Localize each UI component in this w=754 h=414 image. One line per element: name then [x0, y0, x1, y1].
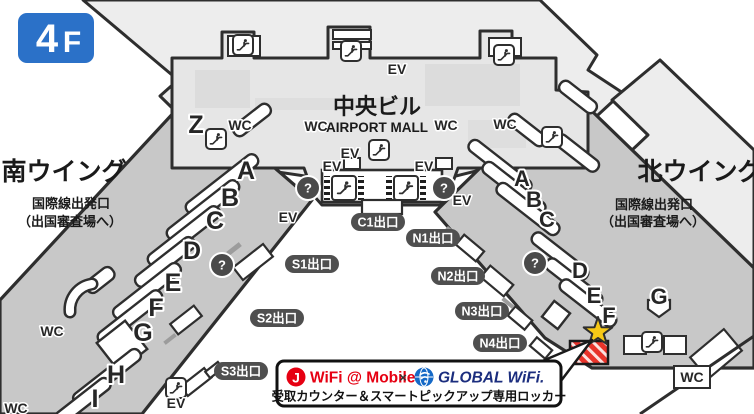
- svg-text:?: ?: [218, 258, 226, 273]
- wc-label: WC: [493, 116, 516, 132]
- ev-label: EV: [341, 145, 360, 161]
- counter-label-south-e: E: [165, 269, 182, 297]
- terminal-map: ? ? ? ? WC WC WC WC WC WC WC EV EV EV EV…: [0, 0, 754, 414]
- counter-label-north-f: F: [602, 303, 615, 328]
- counter-label-south-h: H: [107, 361, 125, 389]
- south-wing-label: 南ウイング: [1, 158, 126, 186]
- ev-label: EV: [279, 209, 298, 225]
- counter-label-south-g: G: [133, 319, 152, 347]
- south-immigration-label: （出国審査場へ）: [18, 214, 122, 229]
- jwifi-logo-letter: J: [292, 370, 300, 386]
- wc-label: WC: [4, 400, 27, 414]
- exit-pill-s2: S2出口: [257, 311, 297, 326]
- counter-label-north-g: G: [650, 284, 667, 309]
- counter-label-north-e: E: [587, 283, 602, 308]
- wifi-banner[interactable]: J WiFi @ Mobile × GLOBAL WiFi. 受取カウンター＆ス…: [272, 361, 567, 406]
- wc-label: WC: [680, 369, 703, 385]
- floor-number: 4: [36, 17, 59, 61]
- escalator-bank-stripe: [358, 176, 364, 200]
- svg-text:?: ?: [304, 181, 312, 196]
- central-texture: [195, 70, 250, 108]
- escalator-bank-stripe: [386, 176, 392, 200]
- exit-pill-n2: N2出口: [438, 269, 479, 284]
- global-wifi-label: GLOBAL WiFi.: [438, 370, 544, 387]
- counter-label-south-f: F: [148, 294, 163, 322]
- airport-mall-label: AIRPORT MALL: [326, 120, 428, 135]
- globe-wifi-icon: [415, 368, 434, 387]
- svg-text:?: ?: [531, 256, 539, 271]
- exit-pill-n1: N1出口: [413, 231, 454, 246]
- exit-pill-s3: S3出口: [221, 364, 261, 379]
- escalator-bank-stripe: [420, 176, 426, 200]
- counter-label-south-z: Z: [188, 111, 203, 139]
- wc-label: WC: [434, 117, 457, 133]
- counter-label-north-d: D: [572, 258, 588, 283]
- north-wing-label: 北ウイング: [637, 158, 754, 186]
- counter-label-north-c: C: [539, 207, 555, 232]
- wc-label: WC: [304, 118, 327, 134]
- banner-description: 受取カウンター＆スマートピックアップ専用ロッカー: [272, 389, 567, 404]
- counter-label-south-d: D: [183, 237, 201, 265]
- counter-label-south-a: A: [237, 157, 255, 185]
- ev-label: EV: [453, 192, 472, 208]
- elevator-box: [436, 158, 452, 169]
- floor-suffix: F: [63, 26, 81, 59]
- escalator-platform: [664, 336, 686, 354]
- exit-pill-n3: N3出口: [462, 304, 503, 319]
- exit-door-c1: [362, 200, 402, 214]
- escalator-platform: [333, 30, 371, 39]
- north-immigration-label: （出国審査場へ）: [601, 214, 705, 229]
- wc-label: WC: [228, 117, 251, 133]
- counter-label-south-c: C: [206, 207, 224, 235]
- south-departure-label: 国際線出発口: [32, 196, 110, 211]
- north-departure-label: 国際線出発口: [615, 197, 693, 212]
- svg-text:?: ?: [440, 181, 448, 196]
- cross-symbol: ×: [399, 370, 407, 385]
- ev-label: EV: [323, 158, 342, 174]
- central-building-label: 中央ビル: [333, 94, 421, 119]
- exit-pill-c1: C1出口: [358, 215, 399, 230]
- floor-map-4f: ? ? ? ? WC WC WC WC WC WC WC EV EV EV EV…: [0, 0, 754, 414]
- central-texture: [425, 64, 520, 106]
- escalator-bank-stripe: [324, 176, 330, 200]
- wc-label: WC: [40, 323, 63, 339]
- ev-label: EV: [388, 61, 407, 77]
- counter-label-south-i: I: [92, 385, 99, 413]
- ev-label: EV: [167, 395, 186, 411]
- exit-pill-n4: N4出口: [480, 336, 521, 351]
- exit-pill-s1: S1出口: [292, 257, 332, 272]
- floor-badge: 4 F: [18, 13, 94, 63]
- ev-label: EV: [415, 158, 434, 174]
